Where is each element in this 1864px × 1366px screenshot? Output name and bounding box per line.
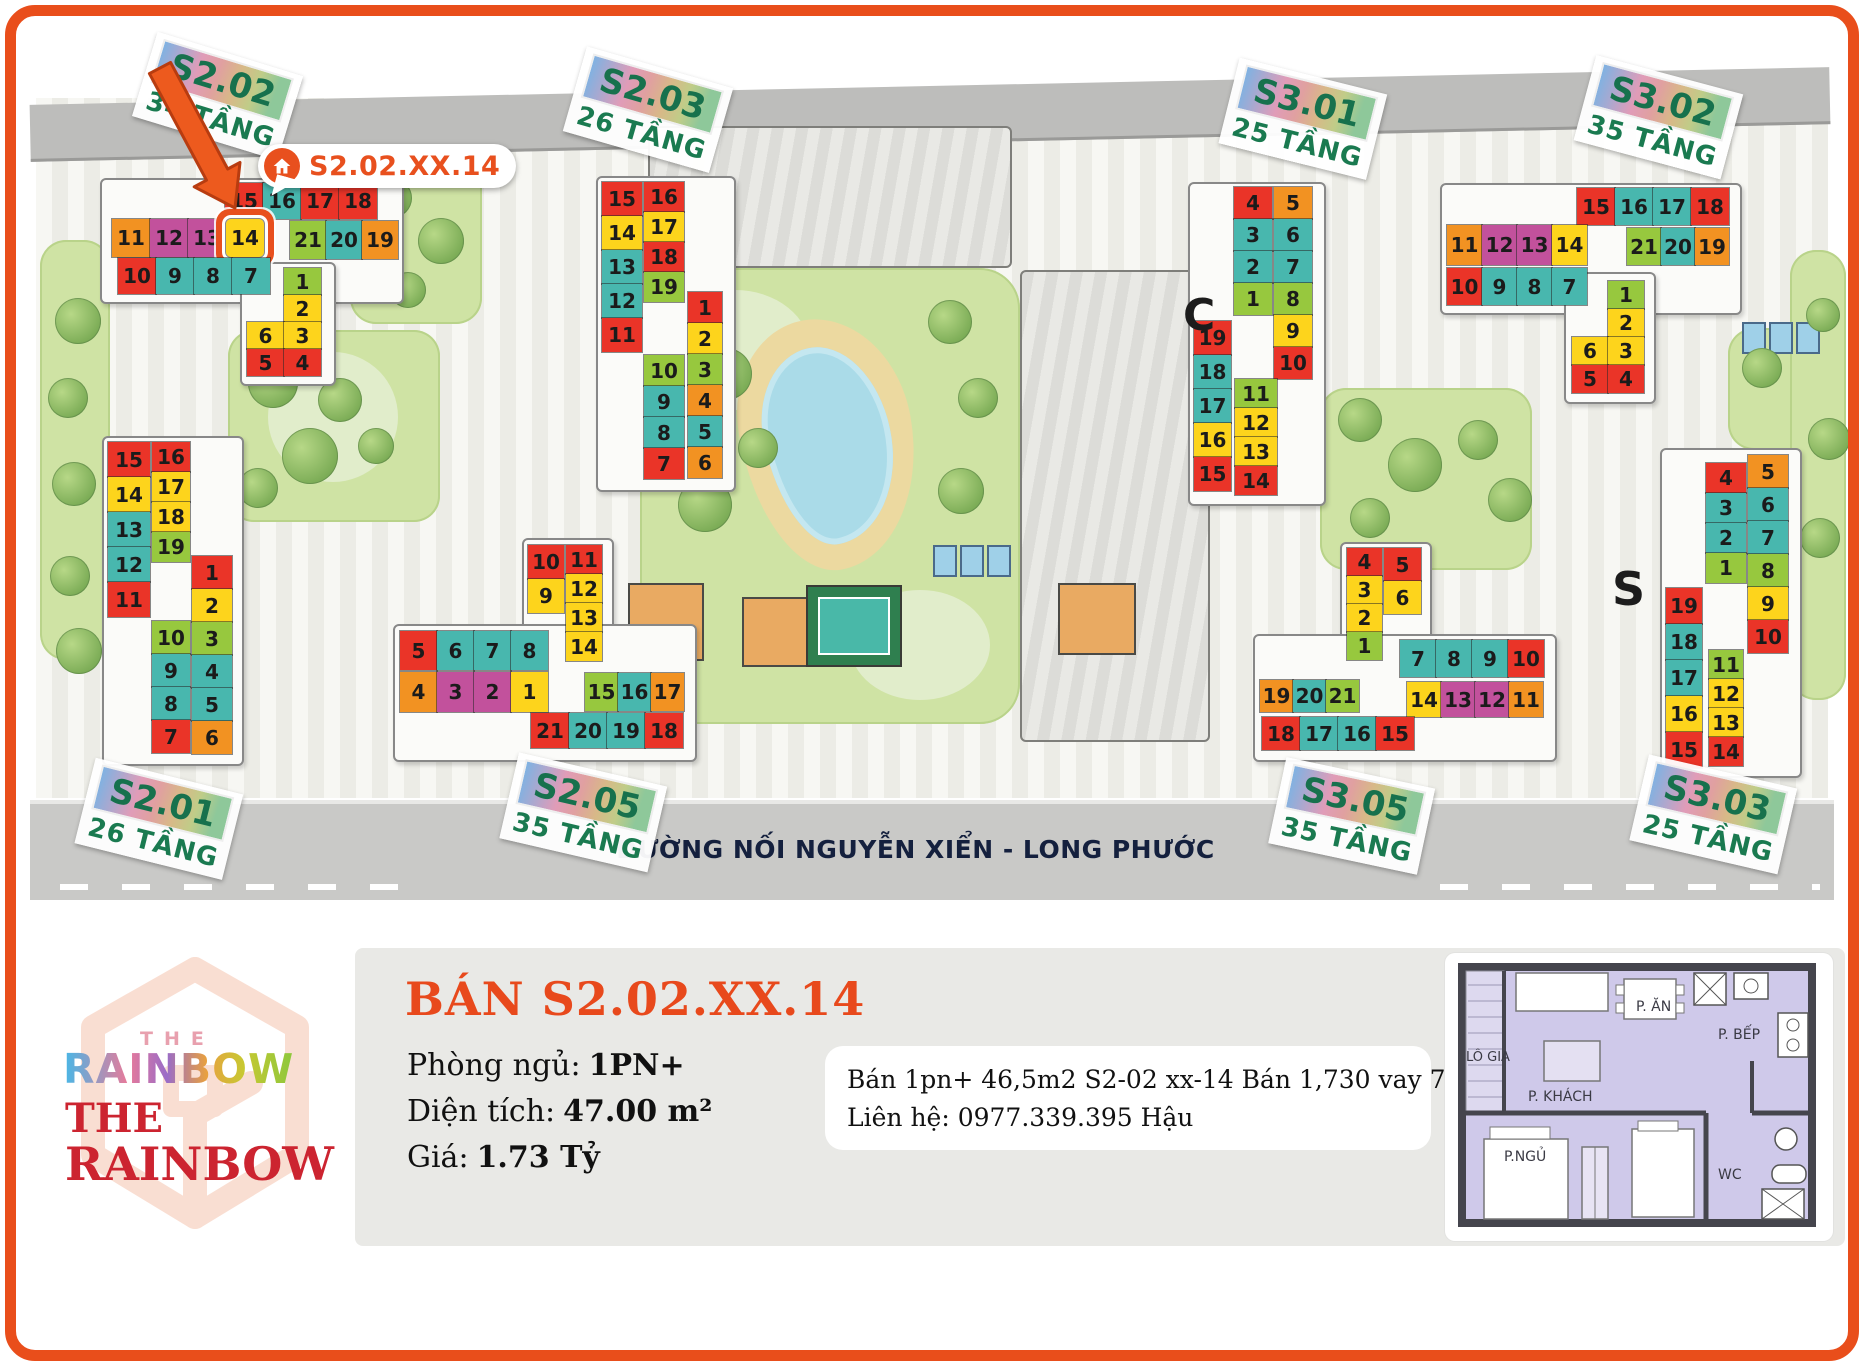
- unit-cell-12[interactable]: 12: [1482, 225, 1517, 265]
- unit-cell-2[interactable]: 2: [474, 672, 511, 712]
- units-s205-armL2: 4321: [400, 672, 548, 712]
- unit-cell-11[interactable]: 11: [112, 219, 150, 257]
- units-s301-upL: 4321: [1234, 187, 1272, 315]
- unit-cell-19[interactable]: 19: [607, 713, 645, 748]
- units-s302-row1: 15161718: [1577, 188, 1729, 225]
- unit-cell-17[interactable]: 17: [1300, 717, 1338, 750]
- listing-panel: BÁN S2.02.XX.14 Phòng ngủ:1PN+ Diện tích…: [355, 948, 1845, 1246]
- unit-cell-5[interactable]: 5: [192, 688, 232, 721]
- unit-cell-4[interactable]: 4: [1347, 548, 1382, 576]
- unit-cell-4[interactable]: 4: [284, 349, 321, 376]
- tree: [56, 628, 102, 674]
- tree: [1458, 420, 1498, 460]
- unit-cell-13[interactable]: 13: [1517, 225, 1552, 265]
- tree: [282, 428, 338, 484]
- unit-cell-12[interactable]: 12: [1709, 679, 1743, 708]
- tree: [1742, 348, 1782, 388]
- unit-cell-1[interactable]: 1: [192, 556, 232, 589]
- unit-cell-4[interactable]: 4: [192, 655, 232, 688]
- field-price: Giá:1.73 Tỷ: [407, 1140, 600, 1175]
- unit-cell-1[interactable]: 1: [1347, 632, 1382, 660]
- unit-cell-19[interactable]: 19: [1260, 680, 1293, 712]
- units-s205-topL: 109: [528, 545, 564, 613]
- unit-cell-8[interactable]: 8: [152, 687, 190, 720]
- units-s205-armR1: 151617: [585, 673, 684, 711]
- unit-cell-12[interactable]: 12: [1475, 682, 1509, 717]
- selected-unit-code: S2.02.XX.14: [309, 151, 500, 182]
- units-s301-upR: 5678910: [1274, 187, 1312, 379]
- field-bedrooms: Phòng ngủ:1PN+: [407, 1048, 685, 1083]
- unit-cell-16[interactable]: 16: [1666, 696, 1702, 732]
- field-area-label: Diện tích:: [407, 1094, 555, 1129]
- unit-cell-8[interactable]: 8: [644, 417, 684, 448]
- field-price-value: 1.73 Tỷ: [477, 1140, 600, 1175]
- unit-cell-6[interactable]: 6: [247, 322, 284, 349]
- unit-cell-14[interactable]: 14: [1235, 466, 1277, 495]
- selection-arrow: [135, 58, 275, 218]
- unit-cell-17[interactable]: 17: [1194, 389, 1231, 423]
- unit-cell-3[interactable]: 3: [1608, 337, 1644, 365]
- units-s203-colA: 1514131211: [602, 182, 642, 352]
- units-s301-loM: 11121314: [1235, 379, 1277, 495]
- unit-cell-11[interactable]: 11: [1447, 225, 1482, 265]
- room-label-wc: WC: [1718, 1167, 1742, 1183]
- tree: [1388, 438, 1442, 492]
- unit-cell-20[interactable]: 20: [1661, 228, 1695, 265]
- field-bedrooms-label: Phòng ngủ:: [407, 1048, 581, 1083]
- units-s305-armL2: 18171615: [1262, 717, 1414, 750]
- unit-cell-7[interactable]: 7: [1274, 251, 1312, 283]
- unit-cell-13[interactable]: 13: [1235, 437, 1277, 466]
- units-s302-row2b: 212019: [1627, 228, 1729, 265]
- unit-cell-14[interactable]: 14: [1407, 682, 1441, 717]
- units-s205-topR: 11121314: [566, 545, 602, 661]
- tree: [1488, 478, 1532, 522]
- unit-cell-3[interactable]: 3: [1706, 493, 1746, 523]
- pool-cabins: [933, 545, 1011, 577]
- unit-cell-16[interactable]: 16: [1194, 423, 1231, 457]
- room-label-living: P. KHÁCH: [1528, 1088, 1593, 1105]
- unit-cell-1[interactable]: 1: [688, 292, 722, 323]
- unit-cell-13[interactable]: 13: [1441, 682, 1475, 717]
- unit-cell-10[interactable]: 10: [528, 545, 564, 579]
- basketball-court-2: [742, 597, 808, 667]
- units-s201-colB: 16171819: [152, 442, 190, 562]
- unit-cell-16[interactable]: 16: [618, 673, 651, 711]
- unit-cell-4[interactable]: 4: [400, 672, 437, 712]
- room-label-bedroom: P.NGỦ: [1504, 1146, 1546, 1165]
- logo-rainbow-gradient: RAINBOW: [63, 1045, 294, 1093]
- unit-cell-1[interactable]: 1: [511, 672, 548, 712]
- unit-cell-6[interactable]: 6: [1274, 219, 1312, 251]
- units-s305-topL: 4321: [1347, 548, 1382, 660]
- unit-cell-21[interactable]: 21: [531, 713, 569, 748]
- tree: [50, 556, 90, 596]
- unit-cell-12[interactable]: 12: [1235, 408, 1277, 437]
- road-dash-line: [1440, 884, 1820, 890]
- unit-cell-10[interactable]: 10: [1274, 347, 1312, 379]
- unit-cell-1[interactable]: 1: [1234, 283, 1272, 315]
- unit-cell-6[interactable]: 6: [688, 447, 722, 478]
- unit-cell-11[interactable]: 11: [602, 318, 642, 352]
- tree: [738, 428, 778, 468]
- units-s202-row2b: 212019: [290, 221, 398, 259]
- unit-cell-4[interactable]: 4: [1234, 187, 1272, 219]
- unit-cell-7[interactable]: 7: [644, 448, 684, 479]
- unit-cell-9[interactable]: 9: [1748, 587, 1788, 620]
- unit-cell-15[interactable]: 15: [1376, 717, 1414, 750]
- project-logo: THE RAINBOW THE RAINBOW: [55, 945, 335, 1265]
- unit-cell-5[interactable]: 5: [400, 631, 437, 670]
- unit-cell-16[interactable]: 16: [152, 442, 190, 472]
- unit-cell-14[interactable]: 14: [108, 477, 150, 512]
- unit-cell-5[interactable]: 5: [247, 349, 284, 376]
- unit-cell-16[interactable]: 16: [644, 182, 684, 212]
- unit-cell-7[interactable]: 7: [1748, 521, 1788, 554]
- unit-cell-8[interactable]: 8: [1274, 283, 1312, 315]
- unit-cell-17[interactable]: 17: [152, 472, 190, 502]
- unit-cell-15[interactable]: 15: [1194, 457, 1231, 491]
- unit-cell-14[interactable]: 14: [1552, 225, 1587, 265]
- tree: [358, 428, 394, 464]
- floorplan-card: P. ĂN P. BẾP LÔ GIA P. KHÁCH P.NGỦ WC: [1445, 953, 1833, 1241]
- unit-cell-9[interactable]: 9: [528, 579, 564, 613]
- unit-cell-10[interactable]: 10: [152, 621, 190, 654]
- unit-cell-21[interactable]: 21: [1627, 228, 1661, 265]
- tree: [938, 468, 984, 514]
- unit-cell-11[interactable]: 11: [566, 545, 602, 574]
- road-name-label: ĐƯỜNG NỐI NGUYỄN XIỂN - LONG PHƯỚC: [616, 835, 1215, 864]
- tree: [48, 378, 88, 418]
- unit-cell-14[interactable]: 14: [602, 216, 642, 250]
- unit-cell-2[interactable]: 2: [1608, 309, 1644, 337]
- tree: [1800, 518, 1840, 558]
- unit-cell-2[interactable]: 2: [688, 323, 722, 354]
- unit-cell-19[interactable]: 19: [644, 272, 684, 302]
- unit-cell-5[interactable]: 5: [1384, 548, 1421, 581]
- tree: [1338, 398, 1382, 442]
- unit-cell-16[interactable]: 16: [1338, 717, 1376, 750]
- note-line-1: Bán 1pn+ 46,5m2 S2-02 xx-14 Bán 1,730 va…: [847, 1061, 1409, 1099]
- unit-cell-11[interactable]: 11: [1509, 682, 1543, 717]
- field-area-value: 47.00 m²: [563, 1094, 712, 1129]
- unit-cell-17[interactable]: 17: [651, 673, 684, 711]
- field-area: Diện tích:47.00 m²: [407, 1094, 712, 1129]
- tree: [52, 462, 96, 506]
- unit-cell-18[interactable]: 18: [339, 183, 377, 219]
- road-dash-line: [60, 884, 400, 890]
- unit-cell-1[interactable]: 1: [1706, 553, 1746, 583]
- units-s205-armR2: 21201918: [531, 713, 683, 748]
- tree: [1350, 498, 1390, 538]
- unit-cell-4[interactable]: 4: [1706, 463, 1746, 493]
- tree: [1806, 298, 1840, 332]
- unit-cell-6[interactable]: 6: [1572, 337, 1608, 365]
- unit-cell-16[interactable]: 16: [1615, 188, 1653, 225]
- unit-cell-13[interactable]: 13: [602, 250, 642, 284]
- unit-cell-4[interactable]: 4: [688, 385, 722, 416]
- units-s305-topR: 56: [1384, 548, 1421, 614]
- unit-cell-19[interactable]: 19: [1695, 228, 1729, 265]
- unit-cell-19[interactable]: 19: [1666, 588, 1702, 624]
- unit-cell-2[interactable]: 2: [1234, 251, 1272, 283]
- units-s201-colB2: 10987: [152, 621, 190, 753]
- home-icon: [264, 148, 300, 184]
- unit-cell-9[interactable]: 9: [156, 258, 194, 294]
- site-plan-page: ĐƯỜNG NỐI NGUYỄN XIỂN - LONG PHƯỚC C S 1…: [0, 0, 1864, 1366]
- logo-rainbow-red: RAINBOW: [65, 1137, 334, 1191]
- unit-cell-6[interactable]: 6: [1384, 581, 1421, 614]
- units-s303-loM: 11121314: [1709, 650, 1743, 766]
- unit-cell-12[interactable]: 12: [108, 547, 150, 582]
- listing-title: BÁN S2.02.XX.14: [405, 972, 865, 1026]
- unit-cell-8[interactable]: 8: [1517, 268, 1552, 305]
- unit-cell-2[interactable]: 2: [1347, 604, 1382, 632]
- tree: [418, 218, 464, 264]
- listing-note: Bán 1pn+ 46,5m2 S2-02 xx-14 Bán 1,730 va…: [825, 1046, 1431, 1150]
- unit-cell-8[interactable]: 8: [1436, 640, 1472, 677]
- unit-cell-10[interactable]: 10: [1447, 268, 1482, 305]
- units-s305-armR1: 78910: [1400, 640, 1544, 677]
- unit-cell-19[interactable]: 19: [152, 532, 190, 562]
- unit-cell-17[interactable]: 17: [644, 212, 684, 242]
- parking-lot-right: [1020, 270, 1210, 742]
- unit-cell-6[interactable]: 6: [437, 631, 474, 670]
- unit-cell-17[interactable]: 17: [1666, 660, 1702, 696]
- unit-cell-18[interactable]: 18: [152, 502, 190, 532]
- room-label-dining: P. ĂN: [1636, 997, 1671, 1015]
- unit-cell-12[interactable]: 12: [602, 284, 642, 318]
- unit-cell-14[interactable]: 14: [566, 632, 602, 661]
- room-label-kitchen: P. BẾP: [1718, 1024, 1760, 1043]
- units-s201-colC: 123456: [192, 556, 232, 754]
- unit-cell-3[interactable]: 3: [1347, 576, 1382, 604]
- units-s303-upL: 4321: [1706, 463, 1746, 583]
- units-s203-colC: 123456: [688, 292, 722, 478]
- unit-cell-5[interactable]: 5: [1274, 187, 1312, 219]
- unit-cell-10[interactable]: 10: [644, 355, 684, 386]
- tennis-court-surface: [818, 597, 890, 655]
- units-s302-row3: 10987: [1447, 268, 1587, 305]
- unit-cell-11[interactable]: 11: [108, 582, 150, 617]
- unit-cell-8[interactable]: 8: [511, 631, 548, 670]
- units-s303-loL: 1918171615: [1666, 588, 1702, 768]
- units-s201-colA: 1514131211: [108, 442, 150, 617]
- unit-cell-5[interactable]: 5: [688, 416, 722, 447]
- unit-cell-15[interactable]: 15: [585, 673, 618, 711]
- unit-cell-12[interactable]: 12: [150, 219, 188, 257]
- unit-cell-20[interactable]: 20: [1293, 680, 1326, 712]
- map-letter-mark-c: C: [1183, 290, 1215, 341]
- unit-cell-20[interactable]: 20: [569, 713, 607, 748]
- units-s203-colB2: 10987: [644, 355, 684, 479]
- unit-cell-7[interactable]: 7: [474, 631, 511, 670]
- tree: [1808, 418, 1850, 460]
- unit-cell-9[interactable]: 9: [1472, 640, 1508, 677]
- unit-cell-7[interactable]: 7: [152, 720, 190, 753]
- unit-cell-18[interactable]: 18: [1262, 717, 1300, 750]
- unit-cell-9[interactable]: 9: [152, 654, 190, 687]
- unit-cell-20[interactable]: 20: [326, 221, 362, 259]
- selected-unit-tooltip[interactable]: S2.02.XX.14: [258, 144, 516, 188]
- unit-cell-21[interactable]: 21: [1326, 680, 1359, 712]
- units-s203-colB: 16171819: [644, 182, 684, 302]
- unit-cell-3[interactable]: 3: [437, 672, 474, 712]
- unit-cell-18[interactable]: 18: [645, 713, 683, 748]
- basketball-court-3: [1058, 583, 1136, 655]
- unit-cell-10[interactable]: 10: [1748, 620, 1788, 653]
- unit-cell-13[interactable]: 13: [566, 603, 602, 632]
- unit-cell-13[interactable]: 13: [188, 219, 226, 257]
- floorplan-image: P. ĂN P. BẾP LÔ GIA P. KHÁCH P.NGỦ WC: [1456, 961, 1822, 1233]
- unit-cell-3[interactable]: 3: [284, 322, 321, 349]
- unit-cell-3[interactable]: 3: [1234, 219, 1272, 251]
- unit-cell-17[interactable]: 17: [301, 183, 339, 219]
- unit-cell-9[interactable]: 9: [644, 386, 684, 417]
- units-s305-armR2: 14131211: [1407, 682, 1543, 717]
- unit-cell-6[interactable]: 6: [1748, 488, 1788, 521]
- unit-cell-8[interactable]: 8: [194, 258, 232, 294]
- unit-cell-11[interactable]: 11: [1235, 379, 1277, 408]
- tree: [928, 300, 972, 344]
- units-s302-row2: 11121314: [1447, 225, 1587, 265]
- unit-cell-7[interactable]: 7: [1400, 640, 1436, 677]
- unit-cell-15[interactable]: 15: [1577, 188, 1615, 225]
- units-s301-loL: 1918171615: [1194, 321, 1231, 491]
- unit-cell-17[interactable]: 17: [1653, 188, 1691, 225]
- unit-cell-5[interactable]: 5: [1572, 365, 1608, 393]
- units-s202-tail: 126354: [247, 268, 321, 376]
- tree: [238, 468, 278, 508]
- unit-cell-3[interactable]: 3: [192, 622, 232, 655]
- units-s305-armL1: 192021: [1260, 680, 1359, 712]
- unit-cell-8[interactable]: 8: [1748, 554, 1788, 587]
- unit-cell-11[interactable]: 11: [1709, 650, 1743, 679]
- unit-cell-9[interactable]: 9: [1274, 315, 1312, 347]
- room-label-balcony: LÔ GIA: [1466, 1049, 1510, 1065]
- unit-cell-15[interactable]: 15: [108, 442, 150, 477]
- units-s202-row2: 11121314: [112, 219, 264, 257]
- tennis-court: [806, 585, 902, 667]
- unit-cell-14[interactable]: 14: [1709, 737, 1743, 766]
- unit-cell-1[interactable]: 1: [284, 268, 321, 295]
- unit-cell-10[interactable]: 10: [118, 258, 156, 294]
- unit-cell-5[interactable]: 5: [1748, 455, 1788, 488]
- unit-cell-3[interactable]: 3: [688, 354, 722, 385]
- unit-cell-4[interactable]: 4: [1608, 365, 1644, 393]
- unit-cell-18[interactable]: 18: [1194, 355, 1231, 389]
- unit-cell-14[interactable]: 14: [226, 219, 264, 257]
- unit-cell-15[interactable]: 15: [602, 182, 642, 216]
- unit-cell-21[interactable]: 21: [290, 221, 326, 259]
- unit-cell-18[interactable]: 18: [1691, 188, 1729, 225]
- field-bedrooms-value: 1PN+: [589, 1048, 685, 1083]
- units-s205-armL1: 5678: [400, 631, 548, 670]
- units-s303-upR: 5678910: [1748, 455, 1788, 653]
- unit-cell-13[interactable]: 13: [1709, 708, 1743, 737]
- unit-cell-19[interactable]: 19: [362, 221, 398, 259]
- logo-the-red: THE: [65, 1095, 163, 1142]
- map-letter-mark-s: S: [1612, 562, 1645, 616]
- unit-cell-2[interactable]: 2: [192, 589, 232, 622]
- unit-cell-12[interactable]: 12: [566, 574, 602, 603]
- unit-cell-9[interactable]: 9: [1482, 268, 1517, 305]
- unit-cell-10[interactable]: 10: [1508, 640, 1544, 677]
- unit-cell-2[interactable]: 2: [1706, 523, 1746, 553]
- unit-cell-2[interactable]: 2: [284, 295, 321, 322]
- unit-cell-13[interactable]: 13: [108, 512, 150, 547]
- unit-cell-18[interactable]: 18: [1666, 624, 1702, 660]
- field-price-label: Giá:: [407, 1140, 469, 1175]
- unit-cell-6[interactable]: 6: [192, 721, 232, 754]
- note-line-2: Liên hệ: 0977.339.395 Hậu: [847, 1099, 1409, 1137]
- units-s302-tail: 126354: [1572, 281, 1644, 393]
- tree: [55, 298, 101, 344]
- unit-cell-18[interactable]: 18: [644, 242, 684, 272]
- unit-cell-1[interactable]: 1: [1608, 281, 1644, 309]
- tree: [958, 378, 998, 418]
